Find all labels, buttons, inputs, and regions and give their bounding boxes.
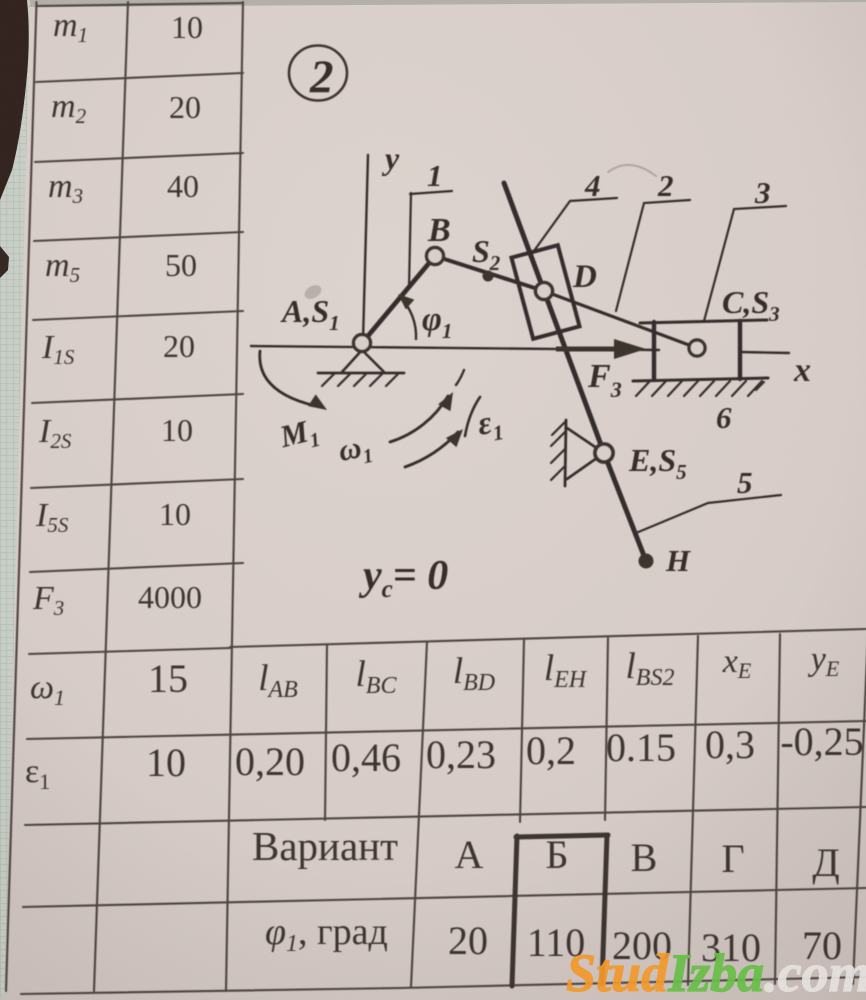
svg-text:StudIzba.com: StudIzba.com — [566, 943, 866, 1000]
